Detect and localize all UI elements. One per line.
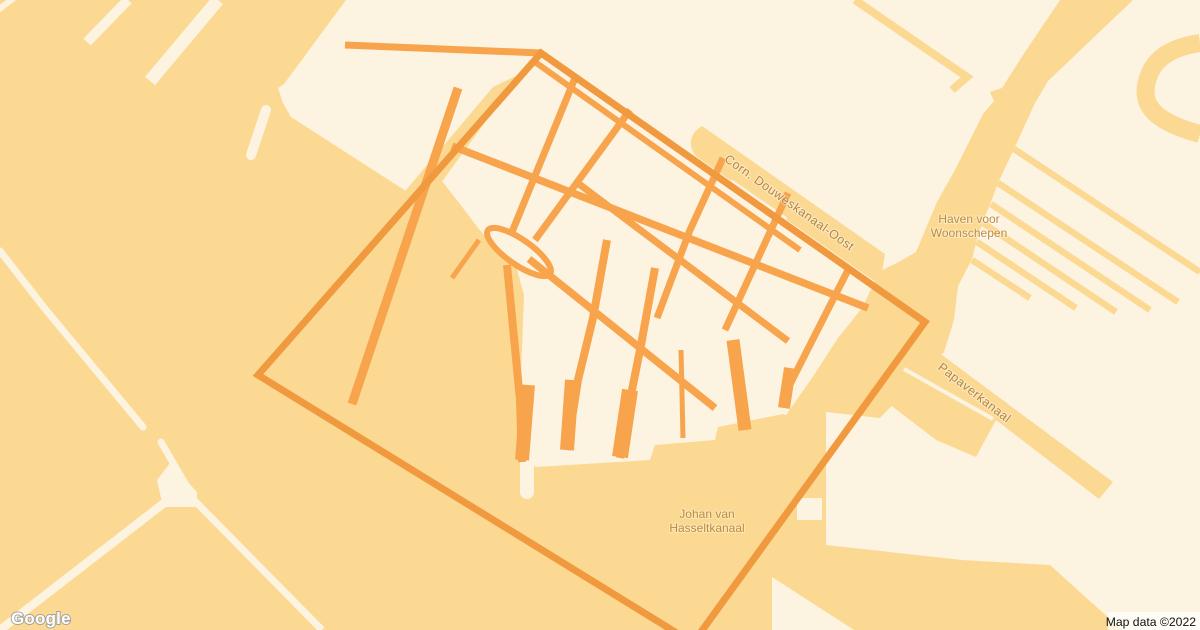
- svg-text:Woonschepen: Woonschepen: [931, 226, 1008, 240]
- svg-text:Johan van: Johan van: [679, 507, 734, 521]
- svg-text:Google: Google: [11, 609, 71, 628]
- svg-text:Map data ©2022: Map data ©2022: [1106, 615, 1197, 629]
- svg-text:Hasseltkanaal: Hasseltkanaal: [669, 521, 744, 535]
- svg-text:Haven voor: Haven voor: [938, 212, 999, 226]
